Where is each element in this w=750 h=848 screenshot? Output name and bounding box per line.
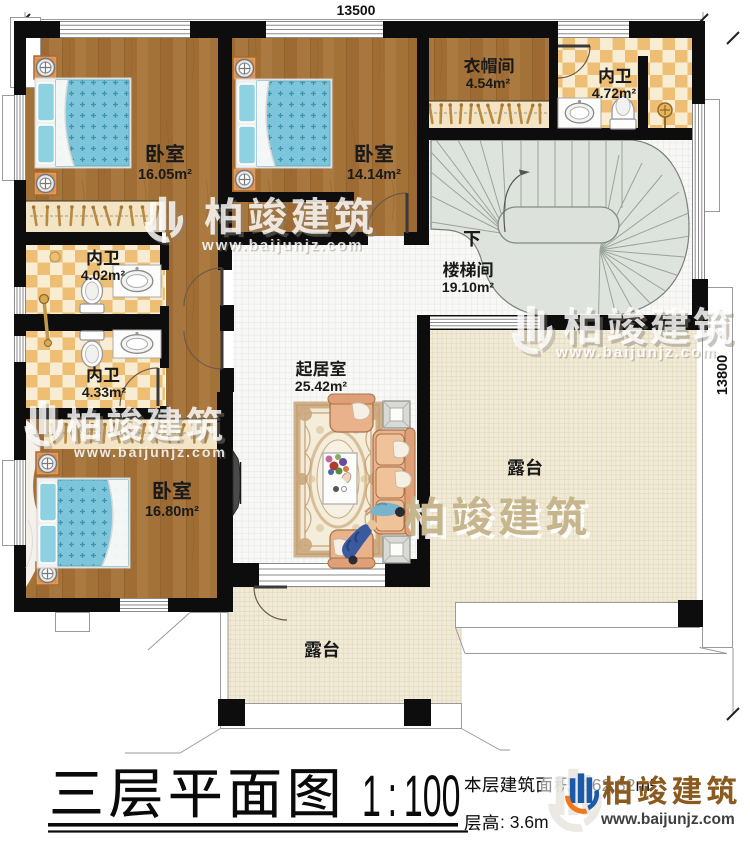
svg-text:1 : 100: 1 : 100	[362, 765, 460, 830]
svg-text:13500: 13500	[337, 2, 376, 18]
svg-text:www.baijunjz.com: www.baijunjz.com	[73, 444, 227, 460]
svg-text:: 3.6m: : 3.6m	[500, 812, 549, 832]
svg-text:16.80m²: 16.80m²	[145, 504, 199, 520]
svg-text:14.14m²: 14.14m²	[347, 167, 401, 183]
svg-text:4.02m²: 4.02m²	[81, 267, 126, 283]
svg-text:4.72m²: 4.72m²	[592, 85, 637, 101]
svg-text:4.33m²: 4.33m²	[82, 384, 127, 400]
svg-text:25.42m²: 25.42m²	[295, 378, 347, 394]
svg-text:www.baijunjz.com: www.baijunjz.com	[201, 237, 363, 254]
svg-text:16.05m²: 16.05m²	[138, 167, 192, 183]
svg-text:www.baijunjz.com: www.baijunjz.com	[600, 811, 735, 828]
svg-text:19.10m²: 19.10m²	[442, 279, 494, 295]
svg-text:www.baijunjz.com: www.baijunjz.com	[555, 344, 717, 361]
svg-text:4.54m²: 4.54m²	[466, 75, 511, 91]
